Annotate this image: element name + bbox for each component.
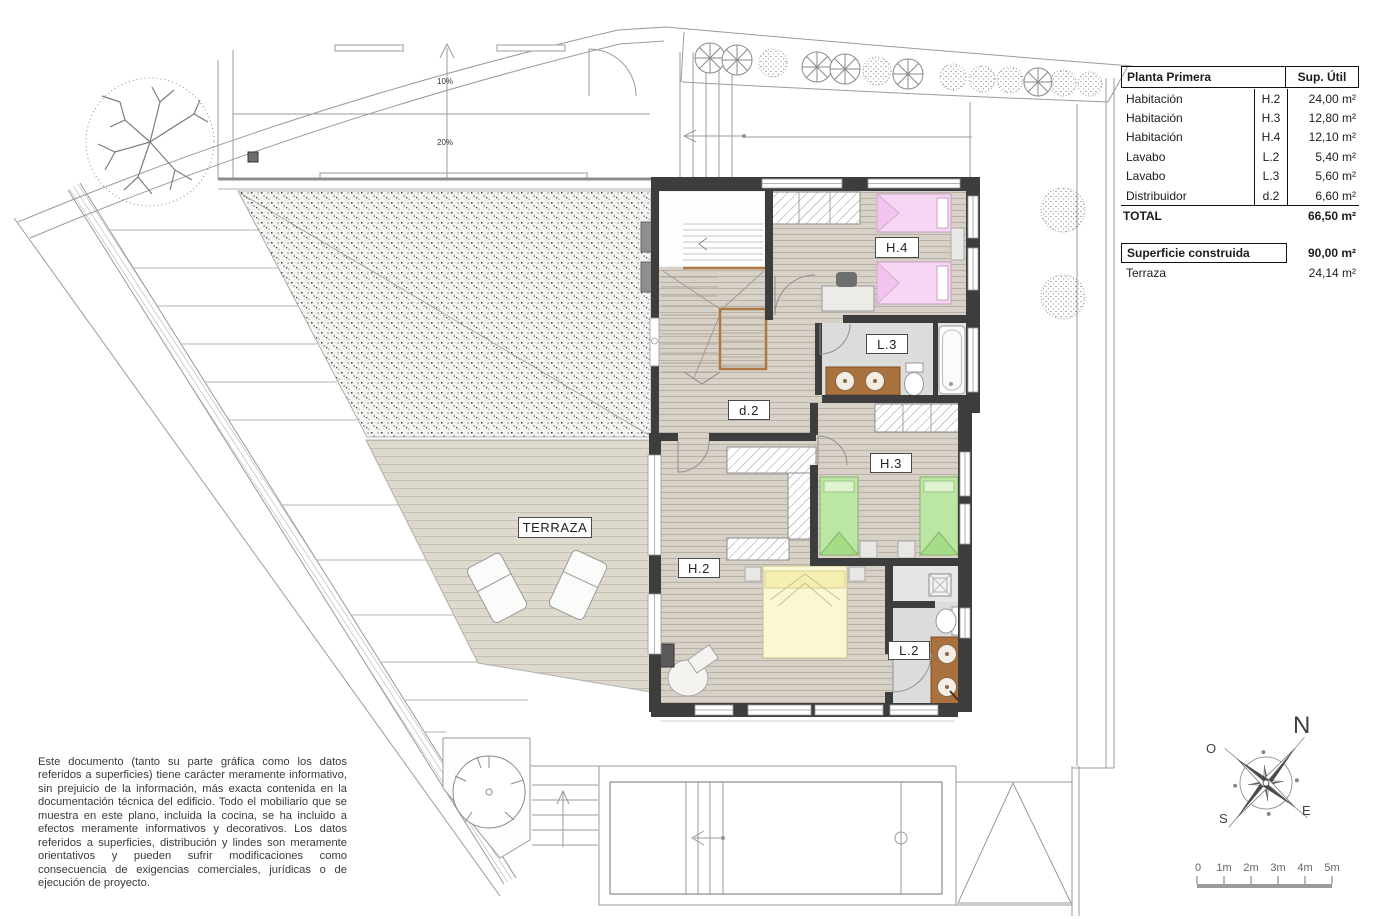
pentagon-tree-plot bbox=[443, 738, 530, 858]
side-bushes bbox=[1041, 188, 1085, 319]
table-row: Habitación H.3 12,80 m² bbox=[1121, 108, 1359, 127]
table-row: Distribuidor d.2 6,60 m² bbox=[1121, 186, 1359, 205]
area-table: Planta Primera Sup. Útil Habitación H.2 … bbox=[1121, 66, 1359, 283]
wardrobe-h3 bbox=[875, 404, 960, 432]
table-built-row: Superficie construida 90,00 m² bbox=[1121, 243, 1359, 263]
stair-void bbox=[659, 191, 765, 267]
disclaimer-text: Este documento (tanto su parte gráfica c… bbox=[38, 756, 347, 890]
bathtub bbox=[939, 326, 965, 394]
scale-label: 0 bbox=[1185, 862, 1211, 874]
nightstand bbox=[898, 541, 915, 558]
table-row: Lavabo L.3 5,60 m² bbox=[1121, 167, 1359, 186]
room-label-h2: H.2 bbox=[678, 558, 720, 578]
table-title: Planta Primera bbox=[1122, 67, 1285, 87]
bed-single-pink bbox=[877, 194, 951, 232]
compass-north-label: N bbox=[1293, 712, 1310, 740]
gate-arc bbox=[589, 49, 636, 96]
table-row: Habitación H.2 24,00 m² bbox=[1121, 89, 1359, 108]
floor-plan-sheet: H.4 L.3 d.2 H.3 H.2 L.2 TERRAZA 10% 20% … bbox=[0, 0, 1400, 919]
scale-label: 1m bbox=[1211, 862, 1237, 874]
compass-rose bbox=[1187, 702, 1346, 862]
room-label-terrace: TERRAZA bbox=[518, 517, 592, 538]
area-table-header: Planta Primera Sup. Útil bbox=[1121, 66, 1359, 88]
desk-chair bbox=[836, 272, 857, 287]
room-label-d2: d.2 bbox=[728, 400, 770, 420]
room-label-h4: H.4 bbox=[875, 237, 919, 258]
table-area-column: Sup. Útil bbox=[1285, 67, 1358, 87]
bed-single-green bbox=[820, 477, 858, 555]
washer bbox=[929, 574, 951, 596]
roof-triangle bbox=[958, 783, 1071, 903]
gravel-roof-area bbox=[218, 179, 665, 437]
slope-label-upper: 10% bbox=[437, 77, 453, 86]
drain-grate bbox=[248, 152, 258, 162]
nightstand bbox=[849, 567, 865, 581]
room-label-l3: L.3 bbox=[866, 334, 908, 354]
room-label-h3: H.3 bbox=[870, 453, 912, 473]
vanity-l3 bbox=[826, 367, 900, 395]
pool bbox=[610, 782, 942, 894]
bed-single-green bbox=[920, 477, 958, 555]
toilet-l3 bbox=[905, 363, 924, 396]
compass-east-label: E bbox=[1302, 803, 1311, 818]
scale-label: 3m bbox=[1265, 862, 1291, 874]
scale-label: 4m bbox=[1292, 862, 1318, 874]
table-row: Habitación H.4 12,10 m² bbox=[1121, 128, 1359, 147]
room-label-l2: L.2 bbox=[888, 641, 930, 660]
slope-label-lower: 20% bbox=[437, 138, 453, 147]
nightstand bbox=[860, 541, 877, 558]
hedge-row bbox=[695, 43, 1102, 96]
table-row: Lavabo L.2 5,40 m² bbox=[1121, 147, 1359, 166]
table-total-row: TOTAL 66,50 m² bbox=[1121, 205, 1359, 225]
table-terrace-row: Terraza 24,14 m² bbox=[1121, 263, 1359, 283]
terrace-deck bbox=[366, 440, 651, 692]
scale-label: 5m bbox=[1319, 862, 1345, 874]
garden-steps bbox=[532, 785, 598, 847]
nightstand bbox=[745, 567, 761, 581]
scale-label: 2m bbox=[1238, 862, 1264, 874]
bed-double-yellow bbox=[763, 566, 847, 658]
desk bbox=[822, 286, 874, 311]
compass-west-label: O bbox=[1206, 741, 1216, 756]
scale-bar bbox=[1196, 876, 1332, 888]
wardrobe-h4 bbox=[768, 192, 860, 224]
bed-single-pink bbox=[877, 262, 951, 304]
nightstand bbox=[951, 228, 964, 260]
pool-courtyard bbox=[599, 766, 1072, 905]
compass-south-label: S bbox=[1219, 811, 1228, 826]
